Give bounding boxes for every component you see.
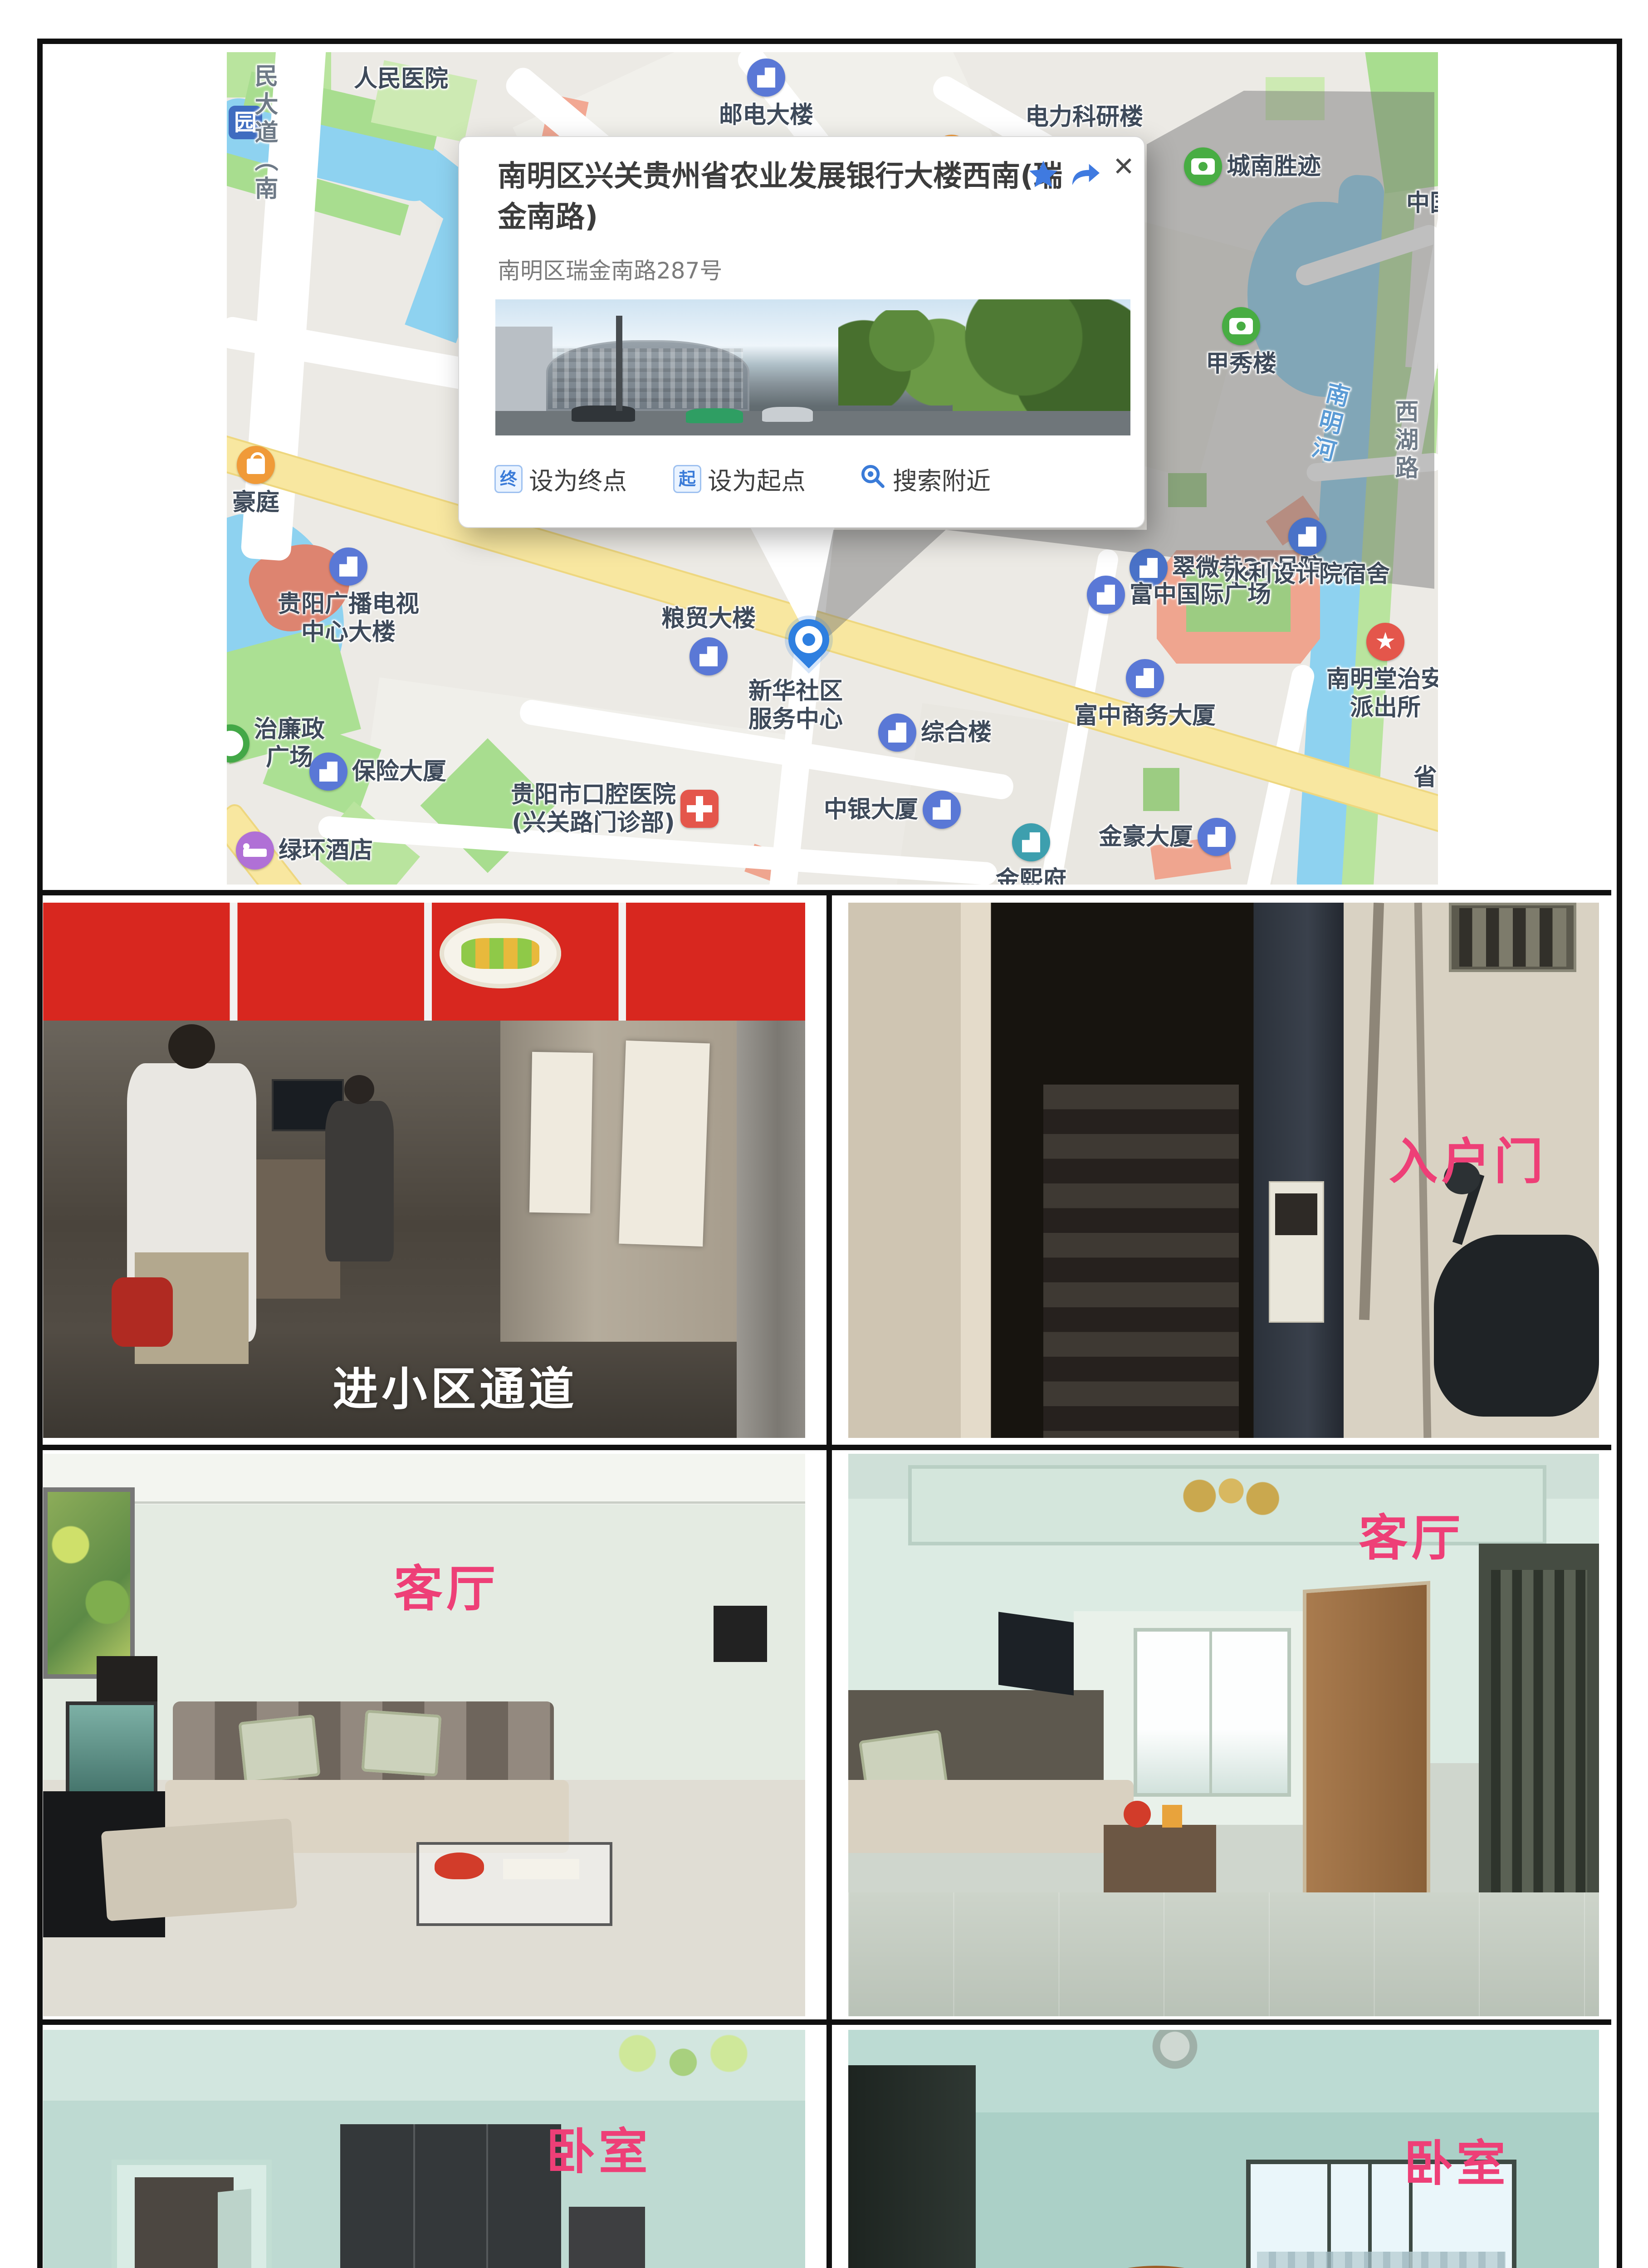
nanmingtang-police-station-label: 南明堂治安派出所 xyxy=(1326,665,1438,722)
set-destination-button[interactable]: 终 设为终点 xyxy=(494,461,627,497)
guiyang-broadcast-tv-center-icon xyxy=(329,547,367,586)
map-poi-guiyang-stomatological-hospital[interactable]: 贵阳市口腔医院(兴关路门诊部) xyxy=(511,781,719,837)
photo-label: 入户门 xyxy=(1389,1122,1547,1193)
grid-line xyxy=(826,890,832,2268)
chandelier xyxy=(1179,1471,1284,1521)
guiyang-stomatological-hospital-icon xyxy=(680,790,719,828)
map-poi-guiyang-broadcast-tv-center[interactable]: 贵阳广播电视中心大楼 xyxy=(278,547,419,646)
map-poi-jinhao-building[interactable]: 金豪大厦 xyxy=(1099,818,1236,856)
map-poi-xinhua-community-service-center[interactable]: 新华社区服务中心 xyxy=(748,677,843,733)
post-telecom-building-label: 邮电大楼 xyxy=(719,101,813,129)
photo-bedroom-1[interactable]: 卧室 xyxy=(43,2030,805,2268)
search-nearby-button[interactable]: 搜索附近 xyxy=(858,461,991,497)
chengnan-shengji-label: 城南胜迹 xyxy=(1227,152,1321,181)
photo-living-room-2[interactable]: 客厅 xyxy=(848,1454,1599,2016)
coffee-table xyxy=(416,1842,612,1926)
jinhao-building-label: 金豪大厦 xyxy=(1099,823,1193,851)
stained-window xyxy=(43,1487,135,1679)
fuzhong-international-plaza-icon xyxy=(1087,576,1125,614)
renmin-avenue-label: 民大道（南 xyxy=(250,64,278,204)
chaise-lounge xyxy=(101,1818,298,1921)
set-origin-label: 设为起点 xyxy=(708,461,806,497)
set-origin-button[interactable]: 起 设为起点 xyxy=(673,461,806,497)
jiaxiu-tower-label: 甲秀楼 xyxy=(1206,350,1276,378)
car xyxy=(572,406,635,422)
search-nearby-label: 搜索附近 xyxy=(893,461,991,497)
map-poi-nanming-river[interactable]: 南明河 xyxy=(1305,379,1351,468)
map-poi-electric-power-research-building[interactable]: 电力科研楼 xyxy=(1025,103,1143,131)
set-destination-label: 设为终点 xyxy=(529,461,627,497)
map-canvas[interactable]: 人民医院园民大道（南邮电大楼电力科研楼荔星名店A座城南胜迹中国甲秀楼南明河翠微巷… xyxy=(227,52,1438,885)
taxi-green xyxy=(686,408,743,423)
ceiling-line xyxy=(43,1501,805,1504)
liangmao-building-label: 粮贸大楼 xyxy=(661,605,756,633)
guiyang-broadcast-tv-center-label: 贵阳广播电视中心大楼 xyxy=(278,590,419,646)
photo-bedroom-2[interactable]: 卧室 xyxy=(848,2030,1599,2268)
car xyxy=(762,407,813,422)
xinhua-community-service-center-label: 新华社区服务中心 xyxy=(748,677,843,733)
popup-actions: 终 设为终点 起 设为起点 搜索附近 xyxy=(459,461,1144,502)
destination-badge-icon: 终 xyxy=(494,465,523,493)
map-info-popup: 南明区兴关贵州省农业发展银行大楼西南(瑞金南路) ✕ 南明区瑞金南路287号 xyxy=(458,136,1145,528)
red-bag xyxy=(112,1277,172,1347)
photo-entry-door[interactable]: 入户门 xyxy=(848,903,1599,1438)
map-poi-sheng-partial[interactable]: 省 xyxy=(1413,763,1437,792)
wall-pipe xyxy=(1359,903,1384,1320)
nanming-river-label: 南明河 xyxy=(1305,379,1351,468)
fuzhong-business-building-icon xyxy=(1126,659,1164,697)
building-silhouette xyxy=(495,327,553,414)
trees xyxy=(838,310,965,406)
bank-of-china-building-icon xyxy=(923,791,961,829)
peoples-hospital-label: 人民医院 xyxy=(354,65,448,93)
map-poi-zonghe-building[interactable]: 综合楼 xyxy=(878,714,992,752)
open-wood-door xyxy=(1306,1584,1427,1908)
lamp-pole xyxy=(616,316,622,411)
origin-badge-icon: 起 xyxy=(673,465,701,493)
ceiling-lamp xyxy=(1134,2030,1216,2071)
map-poi-zhongguo-partial[interactable]: 中国 xyxy=(1406,189,1438,217)
stone-pillar xyxy=(737,1021,805,1438)
photo-label: 卧室 xyxy=(546,2112,651,2183)
balcony-window xyxy=(1134,1628,1291,1797)
zhilianzheng-square-icon xyxy=(227,724,249,763)
jiaxiu-tower-icon xyxy=(1222,307,1260,345)
wardrobe xyxy=(340,2124,561,2268)
zonghe-building-label: 综合楼 xyxy=(921,719,992,747)
photo-label: 客厅 xyxy=(394,1549,499,1620)
person-in-corridor xyxy=(325,1101,394,1261)
lvhuan-hotel-icon xyxy=(236,831,274,870)
stairs xyxy=(1043,1085,1238,1438)
chengnan-shengji-icon xyxy=(1184,147,1222,186)
map-poi-peoples-hospital[interactable]: 人民医院 xyxy=(354,65,448,93)
search-icon xyxy=(858,462,886,496)
fuzhong-international-plaza-label: 富中国际广场 xyxy=(1130,581,1271,609)
cushion xyxy=(361,1710,441,1777)
zonghe-building-icon xyxy=(878,714,916,752)
xihu-road-label: 西湖路 xyxy=(1391,399,1418,484)
jinxifu-label: 金熙府 xyxy=(996,866,1066,885)
door-sticker xyxy=(1269,1181,1324,1323)
water-design-institute-dorm-icon xyxy=(1288,518,1326,556)
share-icon[interactable] xyxy=(1068,158,1104,196)
scooter xyxy=(1434,1235,1599,1417)
popup-title: 南明区兴关贵州省农业发展银行大楼西南(瑞金南路) xyxy=(498,156,1078,238)
ceiling-lamp xyxy=(607,2030,759,2089)
coffee-table xyxy=(1104,1825,1216,1892)
map-poi-jinxifu[interactable]: 金熙府 xyxy=(996,823,1066,885)
bank-of-china-building-label: 中银大厦 xyxy=(824,796,918,824)
red-awning xyxy=(43,903,805,1021)
wall-tv xyxy=(714,1606,767,1662)
jinxifu-icon xyxy=(1012,823,1050,861)
close-icon[interactable]: ✕ xyxy=(1108,151,1139,182)
electric-power-research-building-label: 电力科研楼 xyxy=(1025,103,1143,131)
map-poi-xihu-road[interactable]: 西湖路 xyxy=(1391,399,1418,484)
popup-address: 南明区瑞金南路287号 xyxy=(498,253,722,285)
liangmao-building-icon xyxy=(690,637,728,675)
guiyang-stomatological-hospital-label: 贵阳市口腔医院(兴关路门诊部) xyxy=(511,781,676,837)
map-poi-fuzhong-business-building[interactable]: 富中商务大厦 xyxy=(1074,659,1216,730)
map-poi-haoting[interactable]: 豪庭 xyxy=(232,446,279,517)
photo-label: 卧室 xyxy=(1404,2124,1509,2195)
map-poi-nanmingtang-police-station[interactable]: ★南明堂治安派出所 xyxy=(1326,623,1438,722)
awning-logo xyxy=(440,919,562,988)
fuzhong-business-building-label: 富中商务大厦 xyxy=(1074,702,1216,730)
listing-sheet: 人民医院园民大道（南邮电大楼电力科研楼荔星名店A座城南胜迹中国甲秀楼南明河翠微巷… xyxy=(0,0,1648,2268)
map-poi-fuzhong-international-plaza[interactable]: 富中国际广场 xyxy=(1087,576,1271,614)
notice-poster xyxy=(619,1041,709,1247)
map-poi-chengnan-shengji[interactable]: 城南胜迹 xyxy=(1184,147,1321,186)
favorite-star-icon[interactable] xyxy=(1026,158,1061,194)
haoting-label: 豪庭 xyxy=(232,489,279,517)
window-grille xyxy=(1449,903,1576,972)
metal-entry-gate xyxy=(1254,903,1344,1438)
map-poi-renmin-avenue[interactable]: 民大道（南 xyxy=(250,64,278,204)
cushion xyxy=(238,1714,320,1784)
map-poi-insurance-building[interactable]: 保险大厦 xyxy=(309,753,446,791)
map-poi-bank-of-china-building[interactable]: 中银大厦 xyxy=(824,791,961,829)
photo-label: 客厅 xyxy=(1359,1499,1464,1569)
tile-floor xyxy=(848,1892,1599,2016)
lvhuan-hotel-label: 绿环酒店 xyxy=(279,836,373,865)
haoting-icon xyxy=(237,446,275,484)
insurance-building-label: 保险大厦 xyxy=(352,758,446,786)
side-cabinet xyxy=(569,2207,645,2268)
photo-label: 进小区通道 xyxy=(333,1352,577,1418)
trees xyxy=(953,299,1130,425)
map-poi-liangmao-building[interactable]: 粮贸大楼 xyxy=(661,605,756,675)
photo-living-room-1[interactable]: 客厅 xyxy=(43,1454,805,2016)
post-telecom-building-icon xyxy=(747,59,785,97)
map-poi-post-telecom-building[interactable]: 邮电大楼 xyxy=(719,59,813,129)
street-view-photo[interactable] xyxy=(495,299,1130,435)
sheng-partial-label: 省 xyxy=(1413,763,1437,792)
sofa-seat xyxy=(848,1780,1134,1853)
notice-poster xyxy=(529,1052,593,1213)
wardrobe xyxy=(848,2065,976,2268)
map-poi-jiaxiu-tower[interactable]: 甲秀楼 xyxy=(1206,307,1276,378)
map-poi-lvhuan-hotel[interactable]: 绿环酒店 xyxy=(236,831,373,870)
photo-entrance-passage[interactable]: 进小区通道 xyxy=(43,903,805,1438)
wall-tv xyxy=(998,1612,1074,1695)
jinhao-building-icon xyxy=(1198,818,1236,856)
fish-tank xyxy=(66,1701,157,1803)
zhongguo-partial-label: 中国 xyxy=(1406,189,1438,217)
insurance-building-icon xyxy=(309,753,347,791)
nanmingtang-police-station-icon: ★ xyxy=(1366,623,1404,661)
open-door xyxy=(135,2177,234,2268)
